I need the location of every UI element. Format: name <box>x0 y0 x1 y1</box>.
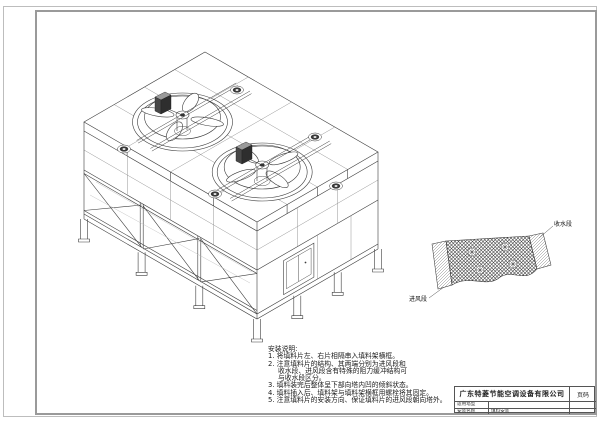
right-panel-face <box>284 216 351 295</box>
drawing-sheet: 收水段 进风段 安装说明: 1. 将填料片左、右片相隔串入填料架横框。 2. 注… <box>0 0 600 424</box>
water-section-leader <box>539 226 553 238</box>
install-name-value: 填料安装 <box>488 408 569 415</box>
page-number-label: 页码 <box>569 387 596 401</box>
air-section-label: 进风段 <box>409 295 427 303</box>
fill-material-detail: 收水段 进风段 <box>409 220 572 303</box>
company-name: 广东特菱节能空调设备有限公司 <box>455 387 569 401</box>
title-block: 广东特菱节能空调设备有限公司 页码 适用塔型 安装名称 填料安装 <box>454 386 595 413</box>
installation-notes: 安装说明: 1. 将填料片左、右片相隔串入填料架横框。 2. 注意填料片的结构、… <box>268 346 468 404</box>
air-section-leader <box>429 287 444 298</box>
install-name-label: 安装名称 <box>455 408 488 415</box>
page-number-cell-2 <box>569 408 596 415</box>
tower-deck <box>84 52 378 222</box>
mesh-patch <box>446 236 537 285</box>
access-door <box>284 243 314 295</box>
notes-line: 5. 注意填料片的安装方向、保证填料片的进风段朝向塔外。 <box>268 397 468 404</box>
water-section-label: 收水段 <box>554 220 572 228</box>
cooling-tower <box>79 52 384 342</box>
